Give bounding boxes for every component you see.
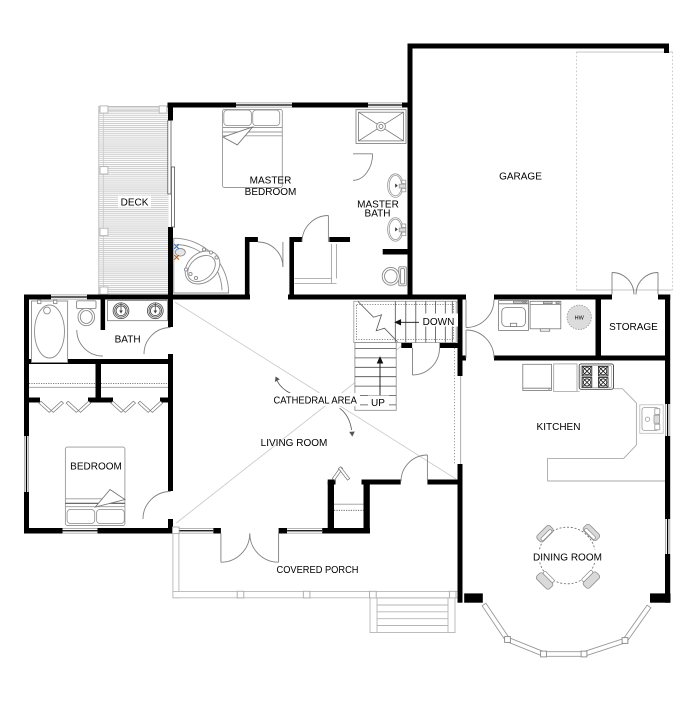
svg-text:COVERED PORCH: COVERED PORCH: [277, 565, 359, 576]
svg-text:DINING ROOM: DINING ROOM: [533, 553, 602, 564]
svg-text:BEDROOM: BEDROOM: [245, 187, 297, 198]
svg-text:BEDROOM: BEDROOM: [70, 462, 122, 473]
svg-text:BATH: BATH: [115, 335, 141, 346]
svg-text:HW: HW: [575, 315, 585, 321]
svg-text:MASTER: MASTER: [250, 176, 292, 187]
svg-text:CATHEDRAL AREA: CATHEDRAL AREA: [274, 396, 358, 407]
svg-text:LIVING ROOM: LIVING ROOM: [261, 438, 328, 449]
svg-text:KITCHEN: KITCHEN: [537, 422, 581, 433]
svg-text:BATH: BATH: [365, 209, 391, 220]
svg-text:UP: UP: [371, 398, 385, 409]
svg-text:GARAGE: GARAGE: [499, 172, 542, 183]
svg-text:DECK: DECK: [121, 198, 149, 209]
svg-text:DOWN: DOWN: [423, 317, 455, 328]
svg-text:STORAGE: STORAGE: [609, 322, 658, 333]
